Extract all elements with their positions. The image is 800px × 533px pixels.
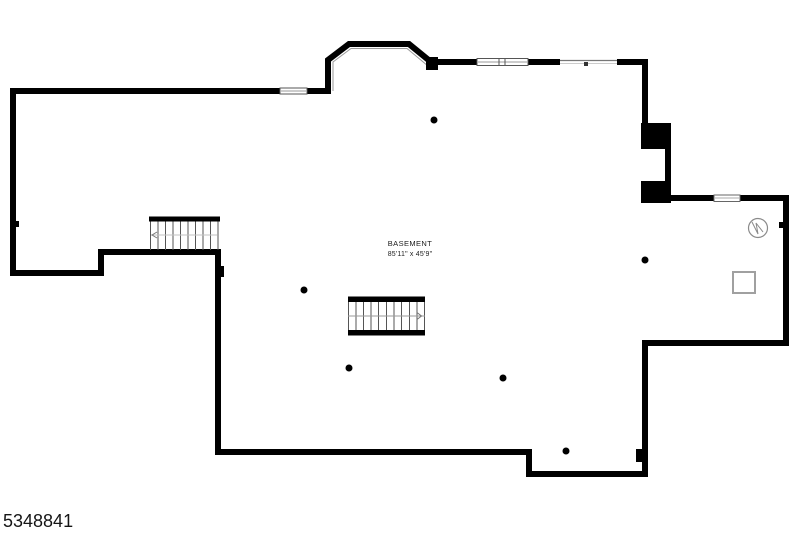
support-column <box>301 287 308 294</box>
water-heater-symbol <box>749 219 768 238</box>
support-column <box>346 365 353 372</box>
bay-window-sill-line <box>333 49 428 92</box>
support-column <box>431 117 438 124</box>
window-top-center <box>477 59 528 66</box>
support-column <box>500 375 507 382</box>
staircase-central <box>348 297 425 336</box>
room-dimensions: 85'11" x 45'9" <box>388 251 433 258</box>
furnace-symbol <box>733 272 755 293</box>
window-right-wing <box>714 195 740 202</box>
support-column <box>642 257 649 264</box>
wall-tick <box>14 221 19 227</box>
opening-top-right <box>560 59 617 67</box>
chimney <box>641 123 671 203</box>
door-tick <box>584 62 588 66</box>
wall-tick <box>779 222 783 228</box>
basement-floor-plan: BASEMENT 85'11" x 45'9" 5348841 <box>0 0 800 533</box>
bay-corner-post <box>426 57 438 70</box>
listing-id: 5348841 <box>3 511 73 531</box>
room-label: BASEMENT <box>388 239 432 248</box>
support-column <box>563 448 570 455</box>
staircase-upper-left <box>149 217 220 251</box>
support-columns <box>301 117 649 455</box>
window-top-left <box>280 88 307 94</box>
firebox-opening <box>641 149 665 181</box>
wall-bump <box>218 266 224 277</box>
wall-bump <box>636 449 643 462</box>
floor-plan-page: BASEMENT 85'11" x 45'9" 5348841 <box>0 0 800 533</box>
exterior-wall-outline <box>13 44 786 474</box>
